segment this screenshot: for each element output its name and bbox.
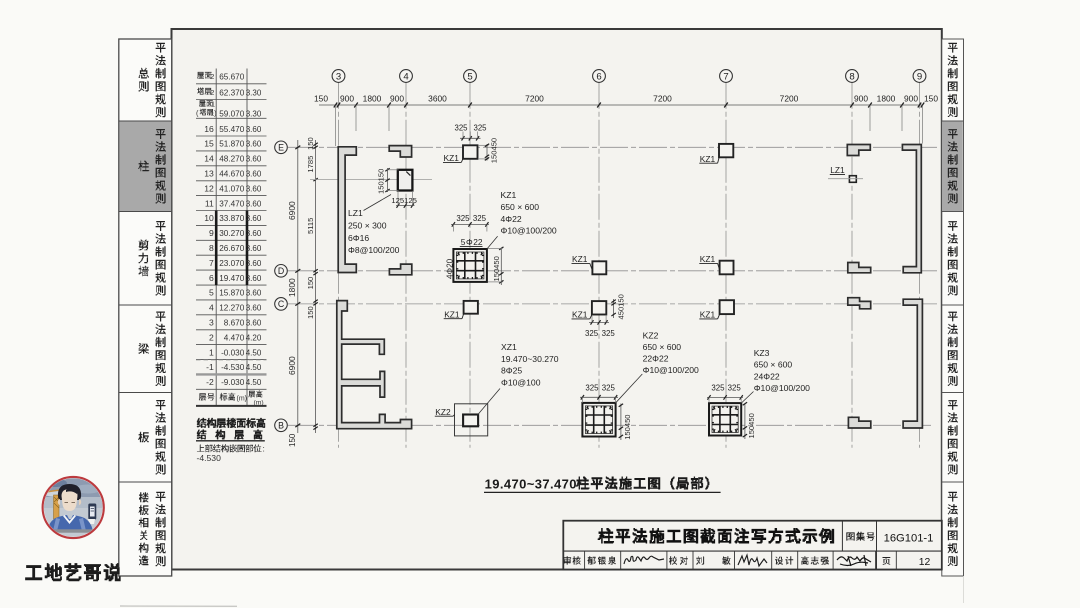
svg-text:7: 7 (723, 71, 728, 82)
svg-text:325: 325 (473, 214, 487, 223)
svg-text:12.270: 12.270 (219, 304, 244, 313)
svg-text:1800: 1800 (287, 278, 297, 297)
svg-text:11: 11 (205, 198, 214, 208)
svg-text:Φ8@100/200: Φ8@100/200 (348, 245, 400, 255)
svg-text:1785: 1785 (306, 156, 315, 173)
svg-text:4.50: 4.50 (246, 378, 262, 387)
svg-text:150450: 150450 (492, 256, 501, 281)
svg-text:325: 325 (585, 329, 599, 338)
svg-text:650 × 600: 650 × 600 (501, 202, 540, 212)
svg-text:44.670: 44.670 (219, 170, 244, 179)
svg-text:6900: 6900 (287, 201, 297, 220)
svg-text:KZ1: KZ1 (700, 310, 716, 320)
svg-text:41.070: 41.070 (219, 184, 244, 193)
svg-text:3.60: 3.60 (246, 259, 262, 268)
svg-text:19.470~30.270: 19.470~30.270 (501, 354, 559, 364)
svg-text:KZ1: KZ1 (572, 254, 588, 264)
svg-text:2: 2 (210, 88, 214, 97)
svg-text:3.60: 3.60 (246, 229, 262, 238)
svg-text:2: 2 (209, 332, 214, 342)
svg-text:8Φ25: 8Φ25 (501, 366, 522, 376)
svg-text:7200: 7200 (653, 94, 672, 104)
svg-text:22: 22 (473, 237, 483, 247)
svg-text:3.60: 3.60 (246, 155, 262, 164)
svg-text:LZ1: LZ1 (348, 208, 363, 218)
svg-text:15.870: 15.870 (219, 289, 244, 298)
svg-text:-2: -2 (206, 377, 214, 387)
svg-text:D: D (278, 266, 284, 276)
svg-text:22Φ22: 22Φ22 (643, 354, 669, 364)
svg-text:3.60: 3.60 (246, 274, 262, 283)
svg-text:150: 150 (306, 277, 315, 290)
svg-text:650 × 600: 650 × 600 (643, 342, 682, 352)
svg-text:8: 8 (849, 71, 854, 82)
svg-text:6Φ16: 6Φ16 (348, 233, 369, 243)
svg-text:8.670: 8.670 (224, 319, 245, 328)
svg-text:-4.530: -4.530 (221, 363, 245, 372)
svg-text:150450: 150450 (489, 138, 498, 163)
svg-text:3.60: 3.60 (246, 319, 262, 328)
svg-text:3: 3 (209, 318, 214, 328)
svg-text:4: 4 (403, 71, 409, 82)
svg-text:150: 150 (306, 306, 315, 319)
svg-text:19.470: 19.470 (219, 274, 244, 283)
svg-text:325: 325 (473, 124, 487, 133)
svg-text:-9.030: -9.030 (221, 378, 245, 387)
svg-text:KZ1: KZ1 (444, 309, 460, 319)
svg-text:125: 125 (404, 196, 417, 205)
svg-text:C: C (278, 299, 285, 309)
svg-text:1: 1 (209, 347, 214, 357)
svg-text:1): 1) (210, 109, 216, 118)
svg-text:150: 150 (314, 94, 328, 104)
svg-text:1800: 1800 (877, 94, 896, 104)
svg-text:5: 5 (209, 288, 214, 298)
svg-text:3.60: 3.60 (246, 214, 262, 223)
svg-text:55.470: 55.470 (219, 125, 244, 134)
svg-text:KZ2: KZ2 (435, 407, 451, 417)
svg-text:6900: 6900 (287, 356, 297, 375)
svg-text:B: B (278, 421, 284, 431)
svg-text:15: 15 (204, 139, 214, 149)
svg-text:4Φ22: 4Φ22 (501, 214, 522, 224)
svg-text:7200: 7200 (525, 94, 544, 104)
svg-text:900: 900 (340, 94, 354, 104)
svg-text:59.070: 59.070 (219, 109, 244, 118)
svg-text:6: 6 (596, 71, 601, 82)
svg-text:450150: 450150 (617, 294, 626, 319)
svg-text:3.60: 3.60 (246, 244, 262, 253)
svg-text:900: 900 (854, 94, 868, 104)
svg-text:1800: 1800 (363, 94, 382, 104)
svg-text:150: 150 (288, 433, 297, 447)
svg-text:7200: 7200 (780, 94, 799, 104)
svg-text:150150: 150150 (376, 169, 385, 194)
svg-text:325: 325 (602, 329, 616, 338)
svg-text:XZ1: XZ1 (501, 342, 517, 352)
svg-text:-0.030: -0.030 (221, 348, 245, 357)
svg-text:3.30: 3.30 (246, 109, 262, 118)
svg-text:3: 3 (336, 71, 341, 82)
svg-text:325: 325 (711, 384, 725, 393)
svg-text:3.60: 3.60 (246, 289, 262, 298)
svg-text:14: 14 (204, 154, 214, 164)
svg-text:325: 325 (454, 124, 468, 133)
svg-text:12: 12 (204, 183, 214, 193)
svg-text:51.870: 51.870 (219, 140, 244, 149)
svg-text:325: 325 (585, 384, 599, 393)
svg-text:KZ1: KZ1 (444, 153, 460, 163)
svg-text:KZ2: KZ2 (643, 330, 659, 340)
svg-text:(m): (m) (237, 396, 248, 403)
svg-text:30.270: 30.270 (219, 229, 244, 238)
svg-text:150450: 150450 (747, 413, 756, 438)
svg-text:KZ3: KZ3 (754, 348, 770, 358)
svg-text:37.470: 37.470 (219, 199, 244, 208)
svg-text:Φ: Φ (466, 237, 473, 247)
svg-text:325: 325 (456, 214, 470, 223)
svg-text:900: 900 (390, 94, 404, 104)
svg-text:5115: 5115 (306, 218, 315, 234)
svg-text:62.370: 62.370 (219, 89, 244, 98)
svg-text:23.070: 23.070 (219, 259, 244, 268)
svg-text:-1: -1 (206, 362, 214, 372)
svg-text:48.270: 48.270 (219, 155, 244, 164)
svg-text:3.60: 3.60 (246, 184, 262, 193)
svg-text:KZ1: KZ1 (572, 310, 588, 320)
svg-text:Φ10@100/200: Φ10@100/200 (754, 383, 810, 393)
svg-text:8: 8 (209, 243, 214, 253)
svg-text:150: 150 (924, 94, 938, 104)
svg-text:LZ1: LZ1 (830, 165, 845, 175)
svg-text:9: 9 (917, 71, 922, 82)
svg-text::: : (263, 444, 265, 454)
svg-text:4.50: 4.50 (246, 348, 262, 357)
svg-text:6: 6 (209, 273, 214, 283)
svg-text:3600: 3600 (428, 94, 447, 104)
svg-text:Φ10@100/200: Φ10@100/200 (643, 365, 699, 375)
svg-text:3.60: 3.60 (246, 304, 262, 313)
svg-text:3.60: 3.60 (246, 170, 262, 179)
svg-text:3.60: 3.60 (246, 199, 262, 208)
svg-text:KZ1: KZ1 (700, 254, 716, 264)
svg-text:4.470: 4.470 (224, 333, 245, 342)
svg-text:9: 9 (209, 228, 214, 238)
svg-text:E: E (278, 143, 284, 153)
svg-text:4.50: 4.50 (246, 363, 262, 372)
svg-text:13: 13 (204, 169, 214, 179)
svg-text:5: 5 (467, 71, 472, 82)
svg-text:2: 2 (210, 72, 214, 81)
svg-text:3.60: 3.60 (246, 140, 262, 149)
svg-text:10: 10 (204, 213, 214, 223)
svg-text:-4.530: -4.530 (197, 453, 222, 463)
svg-text:650 × 600: 650 × 600 (754, 360, 793, 370)
svg-text:325: 325 (728, 384, 742, 393)
svg-text:4Φ20: 4Φ20 (445, 258, 454, 279)
svg-text:Φ10@100: Φ10@100 (501, 377, 541, 387)
svg-text:250 × 300: 250 × 300 (348, 221, 387, 231)
svg-text:KZ1: KZ1 (501, 190, 517, 200)
svg-text:1: 1 (211, 100, 215, 109)
svg-text:16: 16 (204, 124, 214, 134)
svg-text:26.670: 26.670 (219, 244, 244, 253)
svg-text:33.870: 33.870 (219, 214, 244, 223)
svg-text:4.20: 4.20 (246, 333, 262, 342)
svg-text:150: 150 (306, 137, 315, 150)
svg-text:65.670: 65.670 (219, 73, 244, 82)
svg-text:4: 4 (209, 303, 214, 313)
svg-text:16G101-1: 16G101-1 (884, 533, 934, 545)
svg-text:3.30: 3.30 (246, 89, 262, 98)
svg-text:24Φ22: 24Φ22 (754, 371, 780, 381)
svg-text:(m): (m) (254, 399, 264, 406)
svg-text:Φ10@100/200: Φ10@100/200 (501, 226, 557, 236)
svg-text:3.60: 3.60 (246, 125, 262, 134)
svg-text:7: 7 (209, 258, 214, 268)
svg-text:325: 325 (602, 384, 616, 393)
svg-text:19.470~37.470: 19.470~37.470 (485, 477, 577, 492)
svg-text:KZ1: KZ1 (700, 154, 716, 164)
svg-text:900: 900 (904, 94, 918, 104)
svg-text:12: 12 (919, 557, 931, 568)
svg-text:125: 125 (391, 196, 404, 205)
svg-text:150450: 150450 (623, 414, 632, 439)
